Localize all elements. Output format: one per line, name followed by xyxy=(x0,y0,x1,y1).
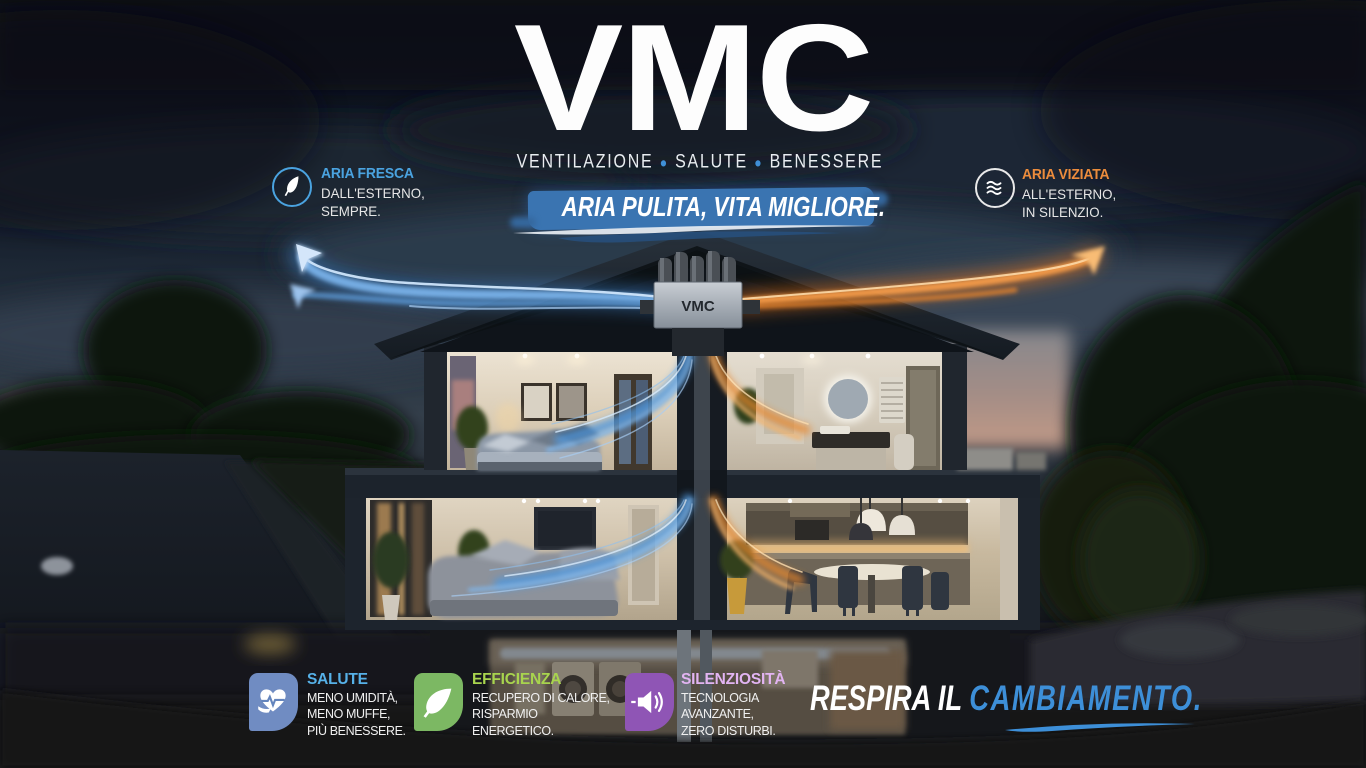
svg-text:VMC: VMC xyxy=(681,298,715,315)
